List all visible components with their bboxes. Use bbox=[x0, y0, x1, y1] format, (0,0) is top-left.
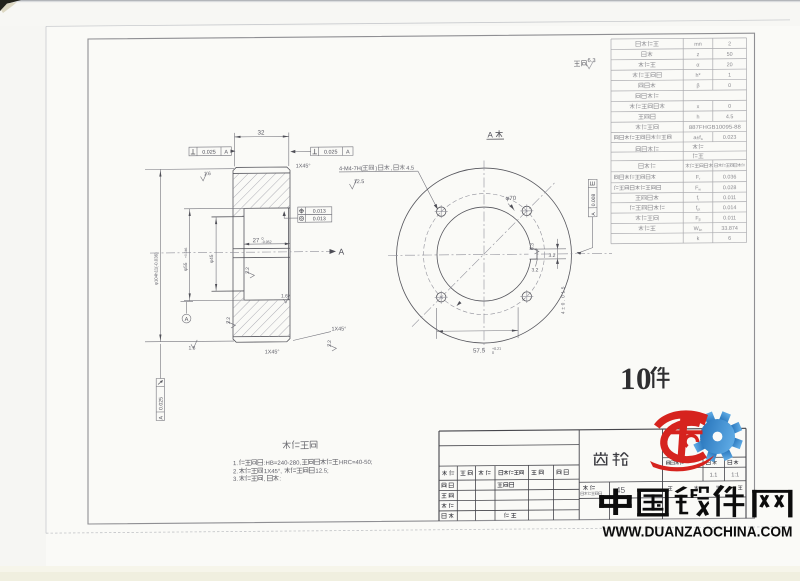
svg-text:50: 50 bbox=[727, 52, 733, 58]
svg-text:A: A bbox=[488, 130, 494, 139]
svg-text:1: 1 bbox=[728, 73, 731, 79]
svg-text:2: 2 bbox=[728, 41, 731, 47]
svg-text:1.6: 1.6 bbox=[204, 171, 211, 177]
svg-text:φ70: φ70 bbox=[506, 196, 517, 202]
svg-text:0.025: 0.025 bbox=[158, 397, 164, 410]
svg-text:0.025: 0.025 bbox=[324, 150, 337, 156]
svg-text:20: 20 bbox=[727, 62, 733, 68]
svg-text:6.3: 6.3 bbox=[530, 243, 536, 250]
svg-text:3.2: 3.2 bbox=[245, 267, 251, 274]
svg-text:1.: 1. bbox=[233, 461, 238, 467]
svg-text:887FHGB10095-88: 887FHGB10095-88 bbox=[689, 125, 741, 131]
svg-text:A: A bbox=[339, 247, 345, 257]
svg-text:0.008: 0.008 bbox=[591, 194, 597, 207]
svg-text:0.013: 0.013 bbox=[313, 216, 326, 222]
svg-text:6.3: 6.3 bbox=[588, 58, 596, 64]
svg-text:mn: mn bbox=[694, 42, 701, 48]
svg-text:32: 32 bbox=[258, 129, 265, 136]
svg-text:A: A bbox=[185, 317, 189, 323]
svg-text:33.874: 33.874 bbox=[721, 226, 737, 232]
svg-text:0: 0 bbox=[492, 351, 494, 355]
svg-text:β: β bbox=[696, 83, 699, 89]
svg-text:57.5: 57.5 bbox=[473, 348, 486, 355]
svg-text:φ104h11(-0.036): φ104h11(-0.036) bbox=[154, 252, 159, 285]
svg-text:α: α bbox=[696, 62, 699, 68]
svg-text:4.5: 4.5 bbox=[406, 166, 414, 172]
svg-text:A: A bbox=[224, 150, 228, 156]
svg-text:h*: h* bbox=[695, 73, 701, 79]
svg-text:1:1: 1:1 bbox=[731, 472, 739, 478]
svg-text:0.025: 0.025 bbox=[202, 150, 215, 156]
svg-text:φ55: φ55 bbox=[183, 262, 189, 271]
svg-text:0: 0 bbox=[728, 104, 731, 110]
svg-text::HB=240-280,: :HB=240-280, bbox=[264, 461, 302, 467]
svg-text:4±0.015: 4±0.015 bbox=[561, 285, 566, 314]
svg-text:1X45°: 1X45° bbox=[265, 349, 280, 355]
svg-text:4.5: 4.5 bbox=[726, 114, 733, 120]
svg-text:1.6: 1.6 bbox=[281, 293, 288, 299]
svg-text:A: A bbox=[159, 415, 165, 419]
svg-text:HRC=40-50;: HRC=40-50; bbox=[339, 460, 373, 466]
svg-text:1X45°,: 1X45°, bbox=[264, 469, 282, 475]
svg-text:z: z bbox=[697, 52, 700, 58]
svg-text:4-M4-7H(: 4-M4-7H( bbox=[339, 166, 363, 172]
svg-text:0.036: 0.036 bbox=[723, 174, 736, 180]
svg-text:2.: 2. bbox=[233, 469, 238, 475]
svg-text:0.014: 0.014 bbox=[723, 205, 736, 211]
svg-text:h: h bbox=[697, 114, 700, 120]
svg-text:10: 10 bbox=[620, 361, 652, 396]
svg-text:0: 0 bbox=[728, 83, 731, 89]
svg-text:3.2: 3.2 bbox=[532, 267, 539, 273]
svg-text:0.011: 0.011 bbox=[723, 195, 736, 201]
svg-text:1.1: 1.1 bbox=[710, 473, 718, 479]
svg-text:12.5;: 12.5; bbox=[315, 469, 329, 475]
svg-text:3.2: 3.2 bbox=[226, 317, 232, 324]
svg-text:12.5: 12.5 bbox=[354, 179, 364, 185]
svg-text:1X45°: 1X45° bbox=[296, 163, 311, 169]
svg-text:A: A bbox=[346, 150, 350, 156]
svg-text:3.2: 3.2 bbox=[327, 340, 333, 347]
svg-text:27: 27 bbox=[253, 238, 260, 244]
svg-text:6: 6 bbox=[728, 236, 731, 242]
svg-text:1X45°: 1X45° bbox=[332, 326, 347, 332]
svg-text:0.011: 0.011 bbox=[723, 215, 736, 221]
svg-text:): ) bbox=[375, 166, 377, 172]
svg-text:0.028: 0.028 bbox=[723, 185, 736, 191]
svg-text:3.2: 3.2 bbox=[549, 253, 556, 259]
svg-text:0.013: 0.013 bbox=[313, 209, 326, 215]
svg-text:0.023: 0.023 bbox=[723, 135, 736, 141]
svg-text:φ45: φ45 bbox=[209, 254, 215, 263]
svg-text:+0.046: +0.046 bbox=[184, 247, 188, 258]
svg-text:-0.052: -0.052 bbox=[262, 240, 272, 244]
svg-text:WWW.DUANZAOCHINA.COM: WWW.DUANZAOCHINA.COM bbox=[603, 524, 793, 541]
svg-text:x: x bbox=[697, 104, 700, 110]
svg-text:k: k bbox=[697, 236, 700, 242]
svg-text:3.: 3. bbox=[233, 477, 238, 483]
